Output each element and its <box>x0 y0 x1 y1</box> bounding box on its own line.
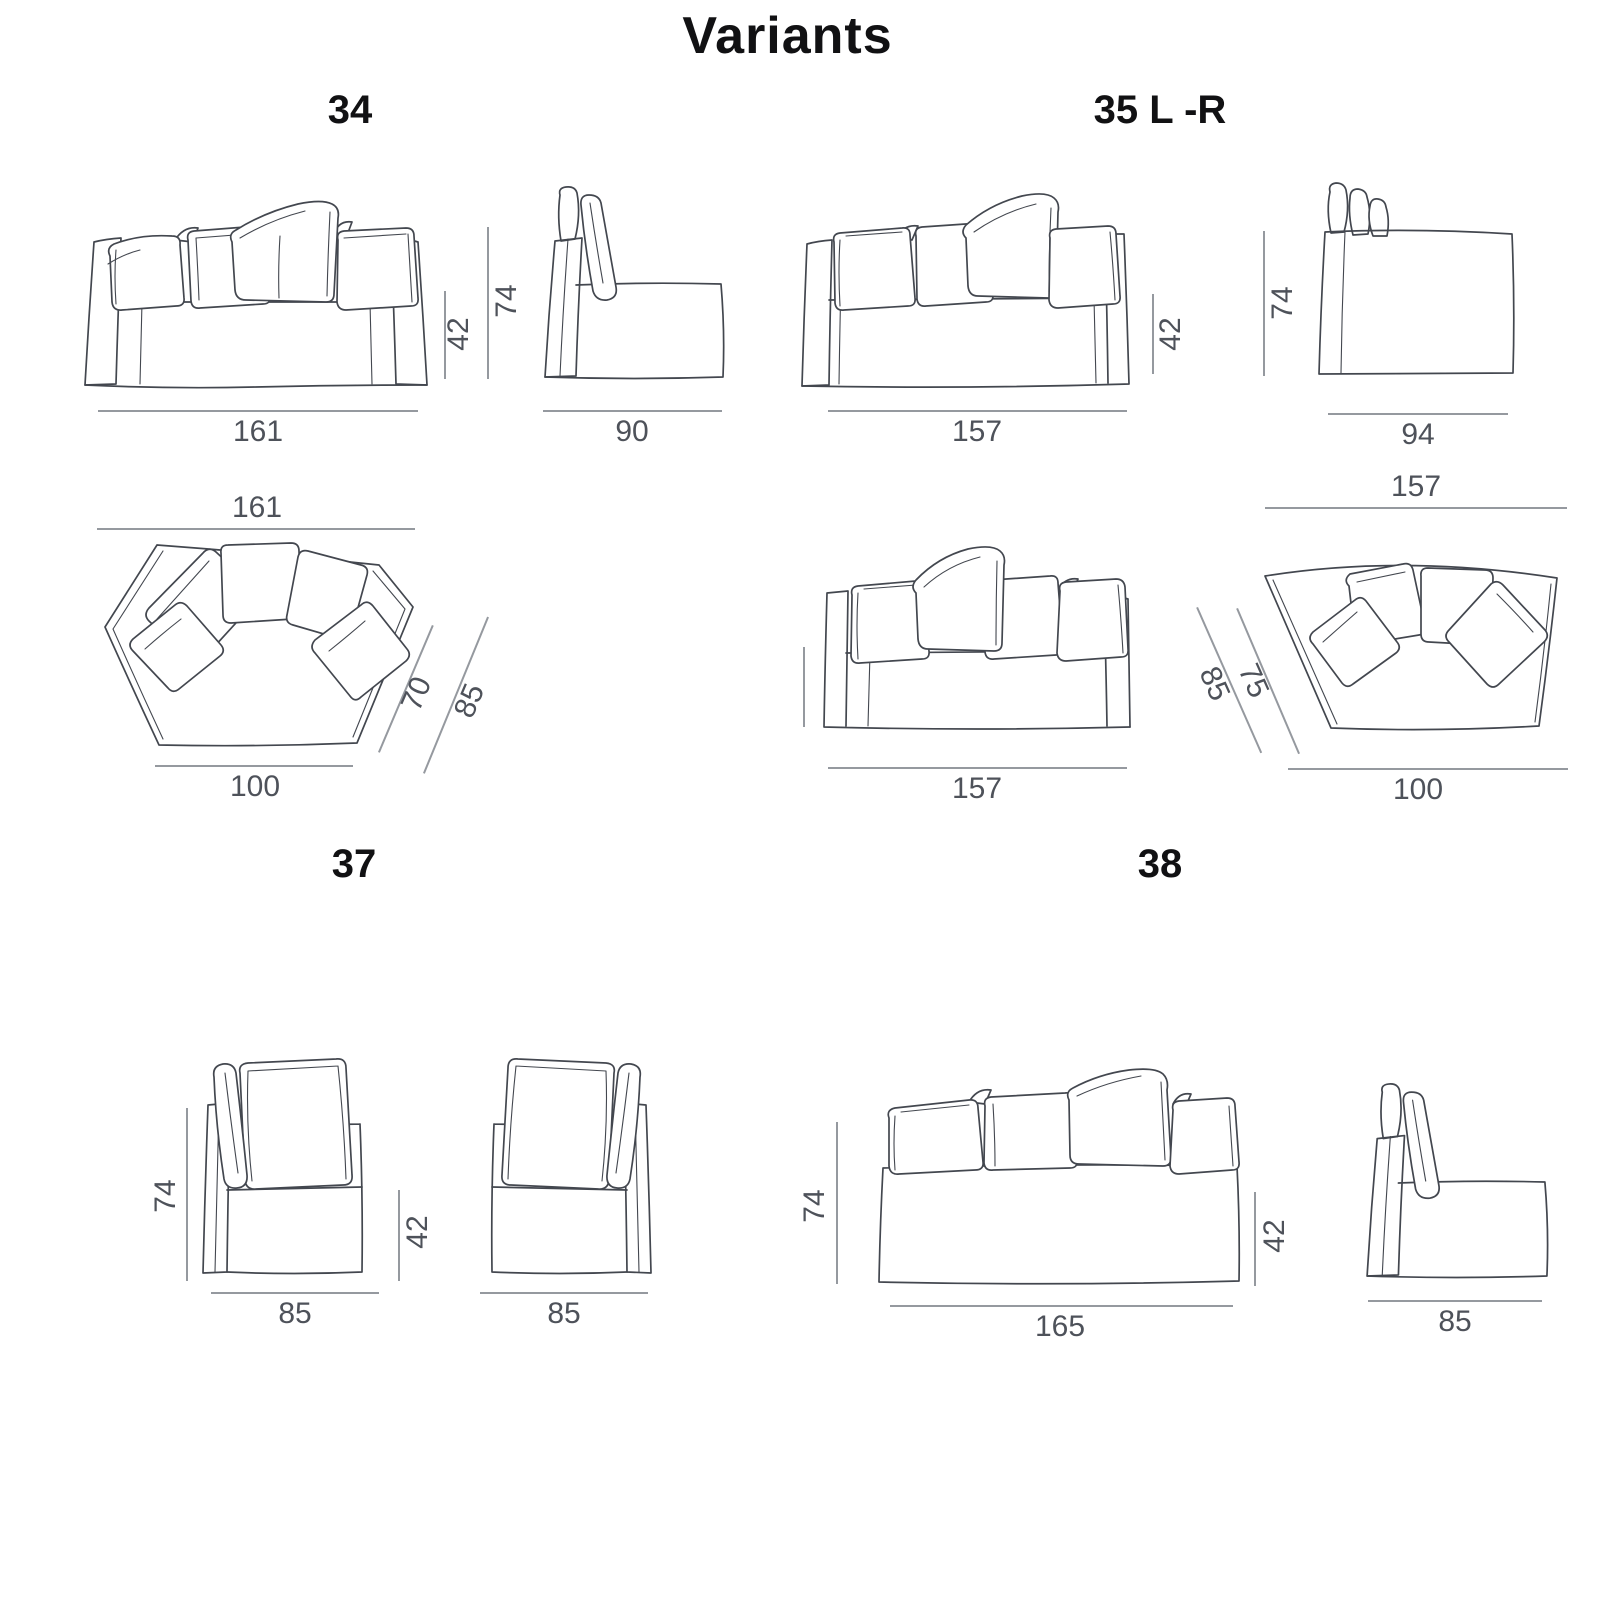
dim-line-35-top-width <box>1265 507 1567 509</box>
dim-35-total-height: 74 <box>1268 273 1298 333</box>
sofa-35-front-sketch <box>798 178 1140 388</box>
dim-line-38-total-height <box>836 1122 838 1284</box>
dim-35-front-width: 157 <box>917 415 1037 449</box>
sofa-34-front-sketch <box>80 178 432 390</box>
dim-line-34-top-width <box>97 528 415 530</box>
dim-37-left-width: 85 <box>235 1297 355 1331</box>
section-label-38: 38 <box>1075 842 1245 887</box>
dim-line-34-front-width <box>98 410 418 412</box>
chair-37-left-sketch <box>198 1053 386 1279</box>
dim-37-total-height: 74 <box>151 1166 181 1226</box>
dim-35-front2-width: 157 <box>917 772 1037 806</box>
dim-35-seat-height: 42 <box>1156 304 1186 364</box>
dim-line-38-side-depth <box>1368 1300 1542 1302</box>
dim-35-side-depth: 94 <box>1358 418 1478 452</box>
dim-line-38-front-width <box>890 1305 1233 1307</box>
dim-line-34-top-front-width <box>155 765 353 767</box>
sofa-34-top-sketch <box>93 533 427 753</box>
page-title: Variants <box>0 6 1575 66</box>
dim-34-top-width: 161 <box>197 491 317 525</box>
dim-line-38-seat-height <box>1254 1192 1256 1286</box>
sofa-38-side-sketch <box>1355 1080 1555 1280</box>
dim-35-top-width: 157 <box>1356 470 1476 504</box>
dim-37-right-width: 85 <box>504 1297 624 1331</box>
dim-line-35-top-front-width <box>1288 768 1568 770</box>
section-label-37: 37 <box>274 842 434 887</box>
dim-line-37-right-width <box>480 1292 648 1294</box>
dim-line-fragment <box>803 647 805 727</box>
dim-38-seat-height: 42 <box>1260 1206 1290 1266</box>
dim-38-front-width: 165 <box>1000 1310 1120 1344</box>
variants-spec-sheet: Variants 34 35 L -R 37 38 <box>0 0 1600 1600</box>
dim-37-seat-height: 42 <box>403 1202 433 1262</box>
sofa-38-front-sketch <box>873 1058 1247 1290</box>
dim-line-37-total-height <box>186 1108 188 1281</box>
dim-34-top-front-width: 100 <box>195 770 315 804</box>
dim-line-37-left-width <box>211 1292 379 1294</box>
dim-38-total-height: 74 <box>800 1176 830 1236</box>
dim-line-34-side-depth <box>543 410 722 412</box>
dim-35-top-front-width: 100 <box>1358 773 1478 807</box>
dim-34-top-depth-outer: 85 <box>444 668 495 735</box>
dim-line-37-seat-height <box>398 1190 400 1281</box>
sofa-35-side-sketch <box>1298 178 1518 380</box>
dim-line-35-front-width <box>828 410 1127 412</box>
dim-34-seat-height: 42 <box>444 304 474 364</box>
section-label-35: 35 L -R <box>1020 88 1300 133</box>
dim-34-side-depth: 90 <box>572 415 692 449</box>
dim-line-35-front2-width <box>828 767 1127 769</box>
sofa-35-top-sketch <box>1253 538 1571 766</box>
dim-line-35-total-height <box>1263 231 1265 376</box>
sofa-35-front2-sketch <box>808 533 1138 733</box>
sofa-34-side-sketch <box>533 183 731 381</box>
section-label-34: 34 <box>270 88 430 133</box>
dim-38-side-depth: 85 <box>1395 1305 1515 1339</box>
dim-line-35-side-depth <box>1328 413 1508 415</box>
dim-line-34-total-height <box>487 227 489 379</box>
dim-34-total-height: 74 <box>492 271 522 331</box>
chair-37-right-sketch <box>468 1053 656 1279</box>
dim-34-front-width: 161 <box>198 415 318 449</box>
